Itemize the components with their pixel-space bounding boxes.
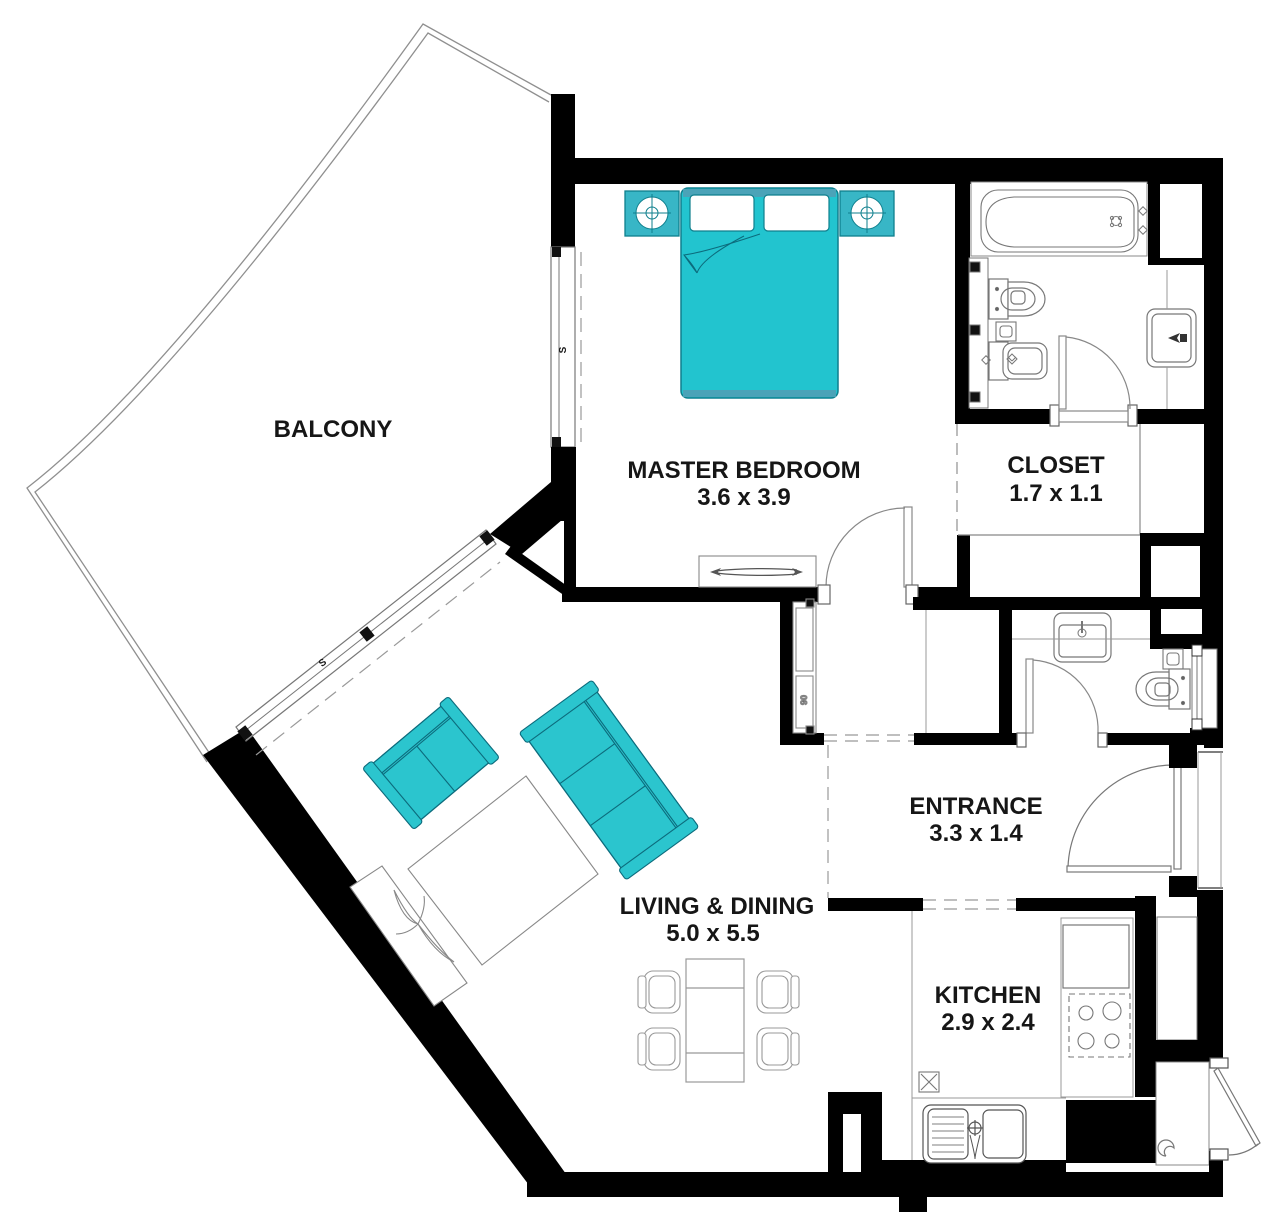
svg-text:5.0 x 5.5: 5.0 x 5.5 — [666, 920, 759, 947]
svg-text:1.7 x 1.1: 1.7 x 1.1 — [1009, 480, 1102, 507]
svg-text:3.6 x 3.9: 3.6 x 3.9 — [697, 484, 790, 511]
svg-text:LIVING & DINING: LIVING & DINING — [620, 893, 815, 920]
svg-text:3.3 x 1.4: 3.3 x 1.4 — [929, 820, 1023, 847]
svg-text:2.9 x 2.4: 2.9 x 2.4 — [941, 1009, 1035, 1036]
svg-text:CLOSET: CLOSET — [1007, 452, 1105, 479]
svg-text:ENTRANCE: ENTRANCE — [909, 793, 1042, 820]
svg-text:BALCONY: BALCONY — [274, 416, 393, 443]
svg-text:KITCHEN: KITCHEN — [935, 982, 1042, 1009]
svg-text:MASTER BEDROOM: MASTER BEDROOM — [627, 457, 860, 484]
svg-text:S: S — [558, 346, 569, 353]
svg-text:90: 90 — [799, 695, 809, 705]
